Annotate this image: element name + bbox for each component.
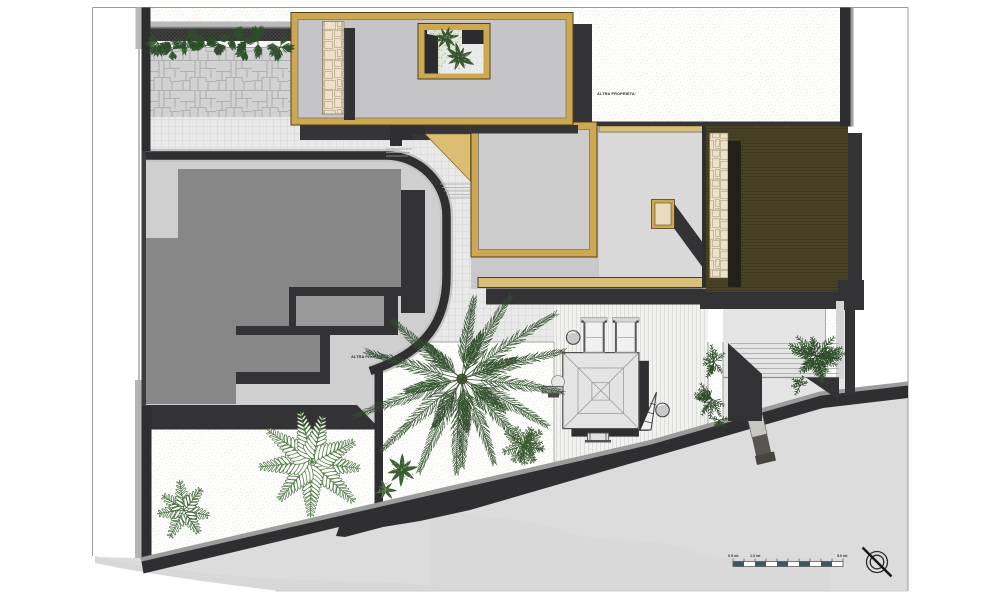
svg-text:ALTRA PROPRIETA’: ALTRA PROPRIETA’ (597, 91, 636, 96)
svg-text:5.0 mt: 5.0 mt (837, 554, 848, 558)
svg-text:1.0 mt: 1.0 mt (750, 554, 761, 558)
svg-text:ALTRA PROPRIETA’: ALTRA PROPRIETA’ (351, 354, 390, 359)
svg-text:0.5 mt: 0.5 mt (728, 554, 739, 558)
